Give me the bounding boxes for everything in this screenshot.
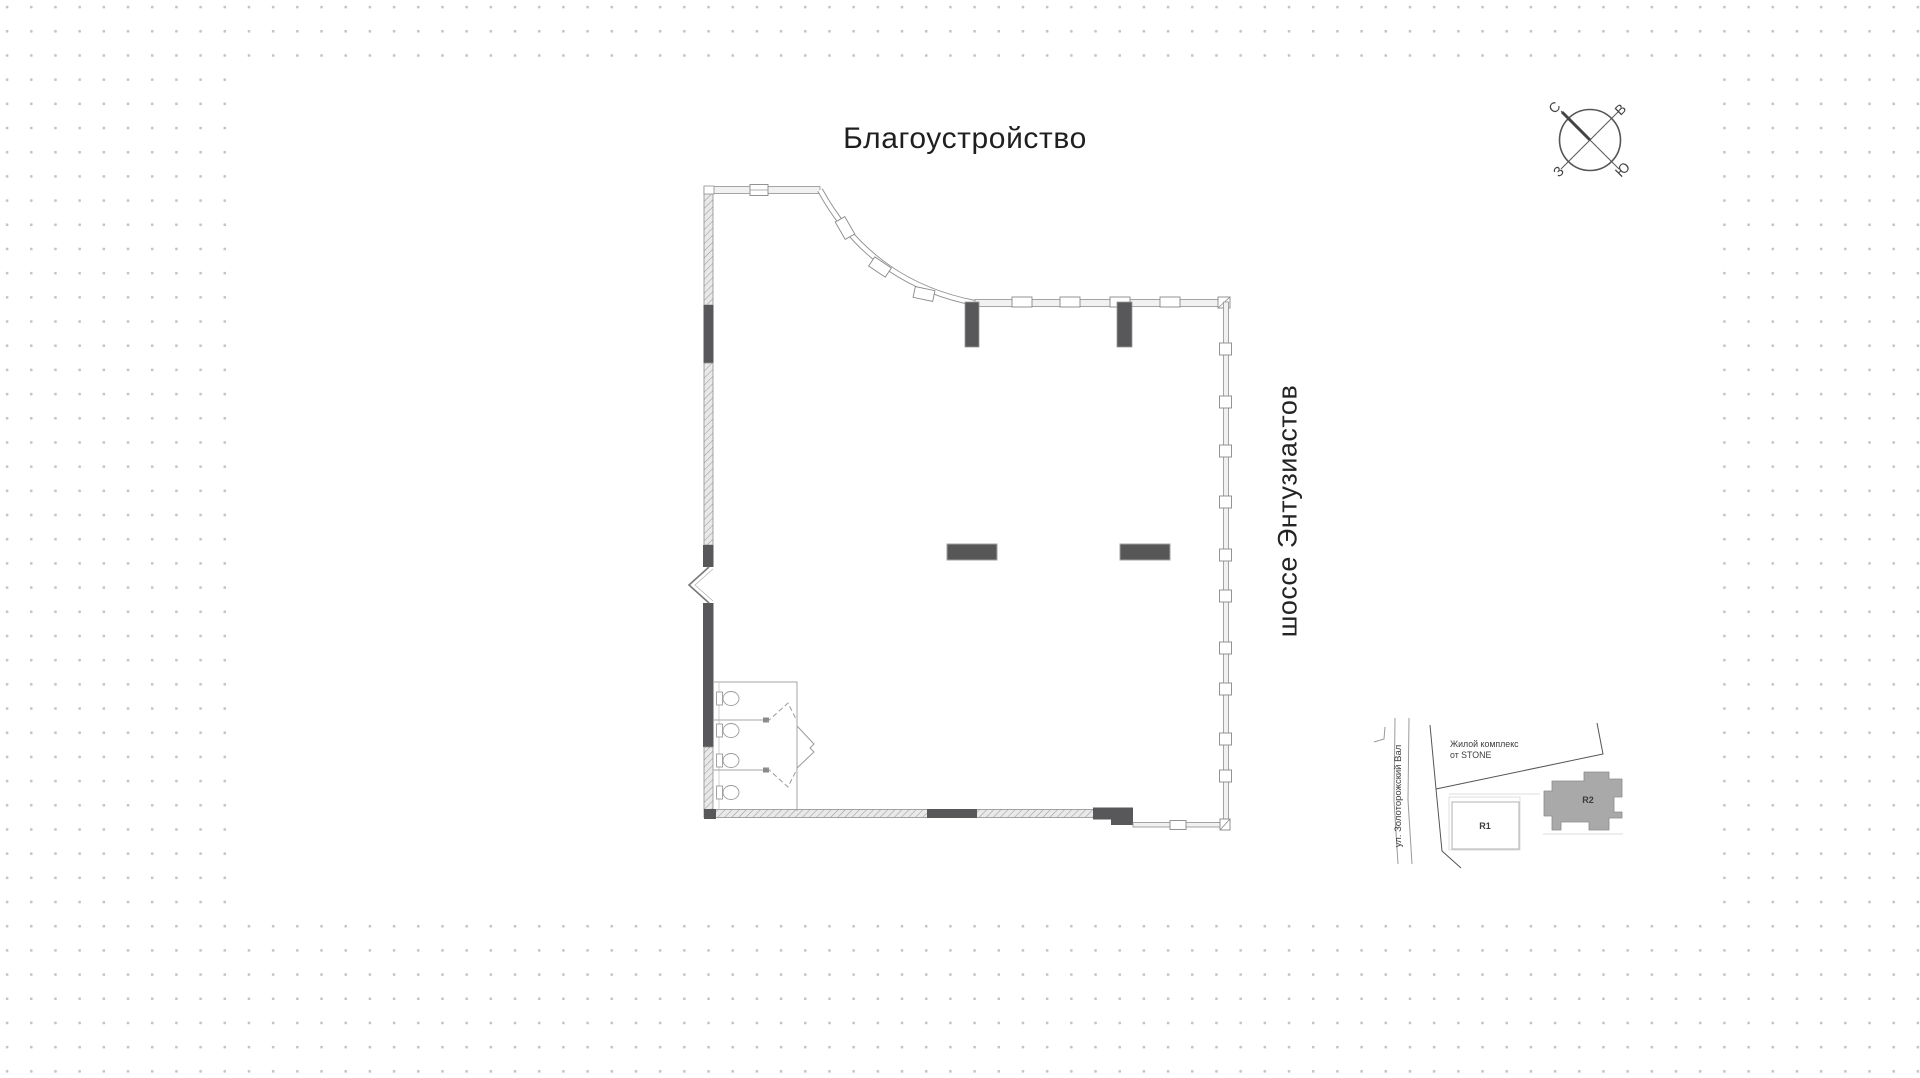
entrance-notch: [689, 567, 713, 603]
facade-columns: [965, 302, 1132, 347]
bottom-wall: [704, 808, 1230, 831]
door-swings: [767, 703, 814, 787]
location-minimap: ул. Золоторожский Вал Жилой комплекс от …: [1365, 710, 1670, 890]
interior-columns: [947, 544, 1170, 560]
curved-wall: [820, 190, 975, 303]
minimap-street-label: ул. Золоторожский Вал: [1393, 745, 1404, 848]
compass-icon: С В З Ю: [1538, 86, 1650, 198]
minimap-building-r2-label: R2: [1582, 795, 1594, 805]
right-wall: [1220, 302, 1232, 828]
highway-road-label: шоссе Энтузиастов: [1273, 385, 1304, 638]
minimap-complex-label-line1: Жилой комплекс: [1450, 739, 1519, 749]
minimap-building-r1-label: R1: [1479, 821, 1491, 831]
compass-north-label: С: [1545, 98, 1563, 116]
bathroom-block: [713, 682, 814, 811]
toilet-fixtures: [717, 692, 740, 800]
top-wall-right: [975, 297, 1230, 308]
minimap-complex-label-line2: от STONE: [1450, 750, 1491, 760]
left-wall: [703, 189, 714, 811]
top-wall-left: [704, 185, 820, 196]
floor-plan-drawing: [660, 150, 1260, 860]
compass-south-label: Ю: [1612, 159, 1633, 180]
